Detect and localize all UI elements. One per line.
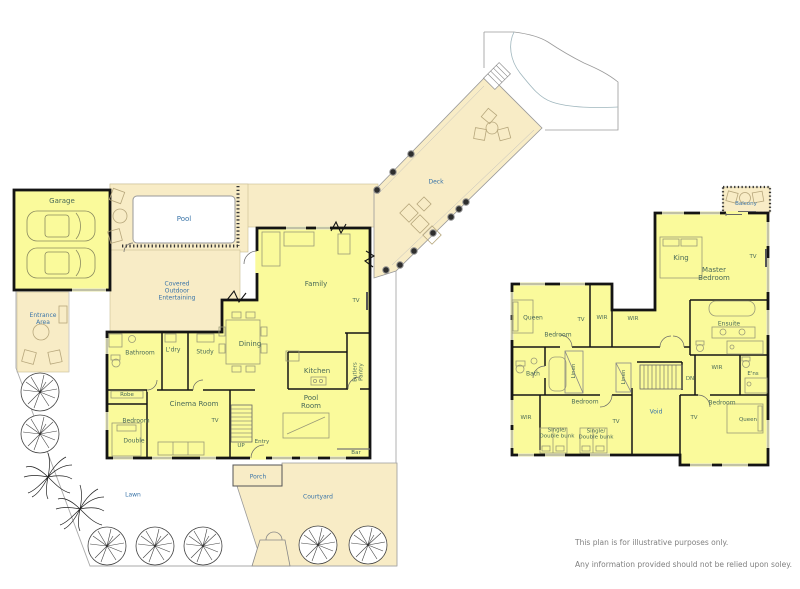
upper-house-outline bbox=[512, 213, 768, 465]
floor-plan-drawing bbox=[0, 0, 800, 589]
porch-area bbox=[233, 465, 282, 486]
floor-plan-page: Pool Deck Lawn Courtyard Porch Entrance … bbox=[0, 0, 800, 589]
deck-area bbox=[374, 74, 542, 278]
upper-floor bbox=[512, 213, 768, 465]
garage-room bbox=[14, 190, 110, 290]
creek-line bbox=[511, 32, 618, 107]
covered-outdoor-area bbox=[110, 250, 240, 334]
pool bbox=[133, 196, 235, 243]
entrance-area bbox=[17, 292, 69, 372]
